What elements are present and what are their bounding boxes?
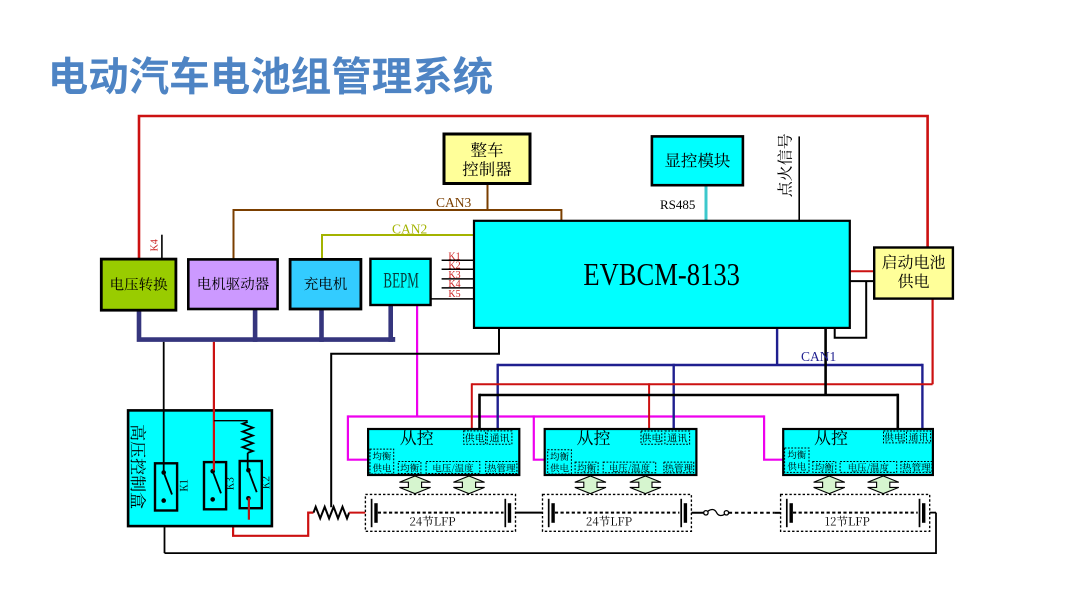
svg-text:BEPM: BEPM	[383, 268, 419, 293]
svg-text:CAN1: CAN1	[801, 349, 836, 364]
svg-text:CAN2: CAN2	[392, 222, 427, 237]
svg-text:K4: K4	[150, 239, 161, 251]
svg-text:K5: K5	[448, 289, 460, 300]
svg-text:CAN3: CAN3	[436, 195, 472, 210]
svg-text:EVBCM-8133: EVBCM-8133	[583, 256, 740, 292]
svg-text:RS485: RS485	[660, 197, 695, 212]
